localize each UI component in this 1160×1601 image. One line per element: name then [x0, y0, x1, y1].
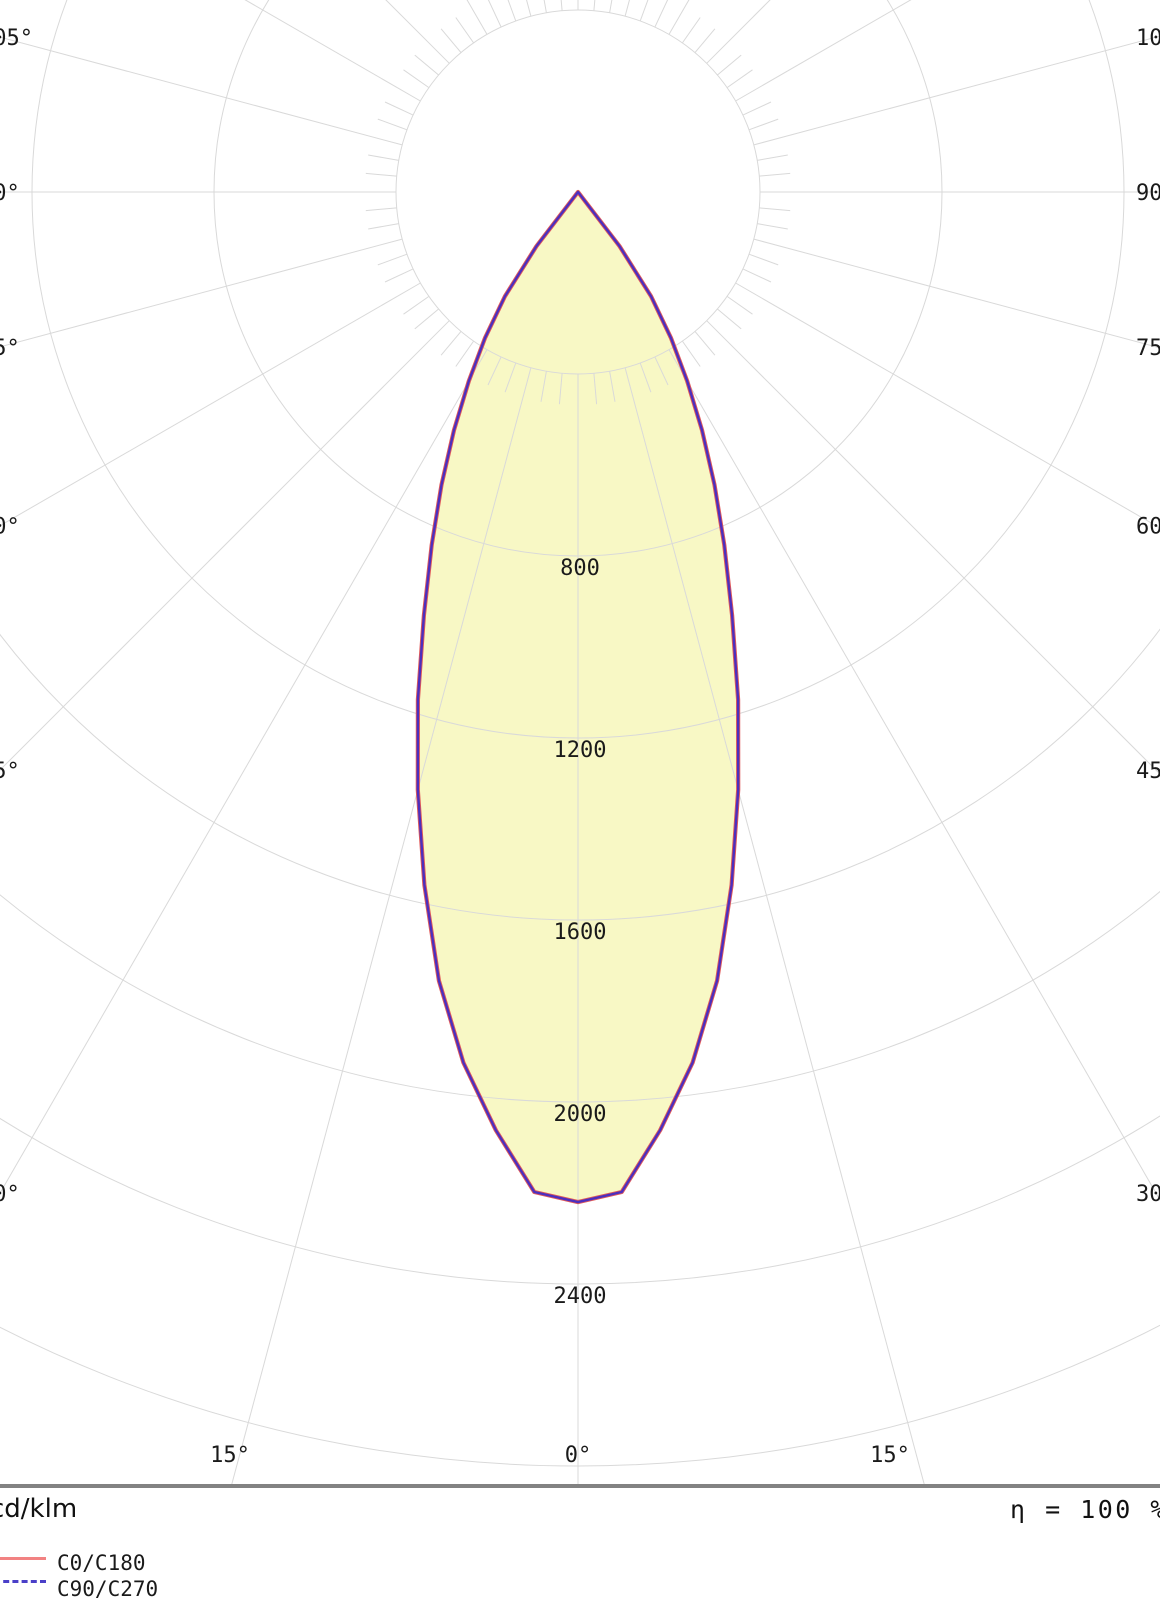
angle-label-left-60: 60° [0, 515, 20, 540]
grid-tick-175deg [594, 0, 597, 11]
grid-tick-160deg [640, 0, 651, 21]
grid-tick-245deg [385, 102, 413, 115]
grid-tick-235deg [404, 70, 429, 88]
grid-ray-75deg [754, 239, 1160, 580]
grid-ray-165deg [625, 0, 966, 16]
polar-diagram-svg: 8001200160020002400105°90°75°60°45°30°10… [0, 0, 1160, 1484]
angle-label-left-30: 30° [0, 1182, 20, 1207]
grid-tick-100deg [757, 155, 788, 160]
grid-ray-240deg [0, 0, 420, 101]
grid-tick-170deg [610, 0, 615, 13]
grid-tick-55deg [727, 296, 752, 314]
ring-value-label-2400: 2400 [554, 1284, 607, 1309]
grid-ray-315deg [0, 321, 449, 1253]
legend-line-c0-c180 [0, 1557, 46, 1560]
grid-tick-70deg [749, 254, 778, 265]
grid-tick-260deg [368, 155, 399, 160]
grid-ray-255deg [0, 0, 402, 145]
grid-ray-60deg [736, 283, 1160, 942]
grid-tick-145deg [682, 18, 700, 43]
grid-ray-330deg [0, 350, 487, 1484]
light-output-ratio-label: η = 100 % [1010, 1495, 1160, 1524]
grid-tick-125deg [727, 70, 752, 88]
grid-tick-65deg [743, 269, 771, 282]
grid-tick-80deg [757, 224, 788, 229]
grid-tick-40deg [695, 331, 715, 355]
angle-label-left-105: 105° [0, 26, 33, 51]
diagram-footer: cd/klm η = 100 % C0/C180 C90/C270 [0, 1484, 1160, 1582]
grid-tick-305deg [404, 296, 429, 314]
angle-label-left-75: 75° [0, 336, 20, 361]
grid-ray-225deg [0, 0, 449, 63]
grid-tick-85deg [759, 208, 790, 211]
angle-label-left-90: 90° [0, 181, 20, 206]
angle-label-right-105: 105° [1136, 26, 1160, 51]
grid-tick-230deg [415, 55, 439, 75]
grid-tick-295deg [385, 269, 413, 282]
grid-tick-115deg [743, 102, 771, 115]
legend-label-c90-c270: C90/C270 [57, 1577, 158, 1601]
grid-tick-190deg [541, 0, 546, 13]
angle-label-bottom-0: 15° [210, 1443, 250, 1468]
grid-tick-35deg [682, 341, 700, 366]
ring-value-label-1200: 1200 [554, 738, 607, 763]
angle-label-right-90: 90° [1136, 181, 1160, 206]
angle-label-bottom-1: 0° [565, 1443, 592, 1468]
grid-tick-320deg [441, 331, 461, 355]
grid-tick-215deg [456, 18, 474, 43]
grid-tick-130deg [717, 55, 741, 75]
angle-label-bottom-2: 15° [870, 1443, 910, 1468]
grid-tick-185deg [559, 0, 562, 11]
grid-ray-195deg [190, 0, 531, 16]
grid-ray-150deg [669, 0, 1160, 34]
grid-tick-140deg [695, 29, 715, 53]
grid-tick-200deg [505, 0, 516, 21]
angle-label-right-30: 30° [1136, 1182, 1160, 1207]
ring-value-label-2000: 2000 [554, 1102, 607, 1127]
angle-label-right-60: 60° [1136, 515, 1160, 540]
legend-label-c0-c180: C0/C180 [57, 1551, 146, 1575]
angle-label-left-45: 45° [0, 759, 20, 784]
grid-tick-310deg [415, 309, 439, 329]
grid-ray-120deg [736, 0, 1160, 101]
grid-tick-325deg [456, 341, 474, 366]
unit-label: cd/klm [0, 1494, 77, 1524]
angle-label-right-45: 45° [1136, 759, 1160, 784]
grid-ray-210deg [0, 0, 487, 34]
polar-photometric-diagram: 8001200160020002400105°90°75°60°45°30°10… [0, 0, 1160, 1484]
grid-tick-265deg [366, 173, 397, 176]
grid-tick-280deg [368, 224, 399, 229]
grid-tick-50deg [717, 309, 741, 329]
ring-value-label-1600: 1600 [554, 920, 607, 945]
grid-ray-45deg [707, 321, 1160, 1253]
angle-label-right-75: 75° [1136, 336, 1160, 361]
grid-tick-110deg [749, 119, 778, 130]
grid-tick-250deg [378, 119, 407, 130]
grid-ray-105deg [754, 0, 1160, 145]
grid-tick-205deg [488, 0, 501, 27]
grid-tick-95deg [759, 173, 790, 176]
grid-tick-155deg [655, 0, 668, 27]
grid-ray-30deg [669, 350, 1160, 1484]
grid-tick-275deg [366, 208, 397, 211]
grid-tick-290deg [378, 254, 407, 265]
ring-value-label-800: 800 [560, 556, 600, 581]
grid-tick-220deg [441, 29, 461, 53]
grid-ray-300deg [0, 283, 420, 942]
